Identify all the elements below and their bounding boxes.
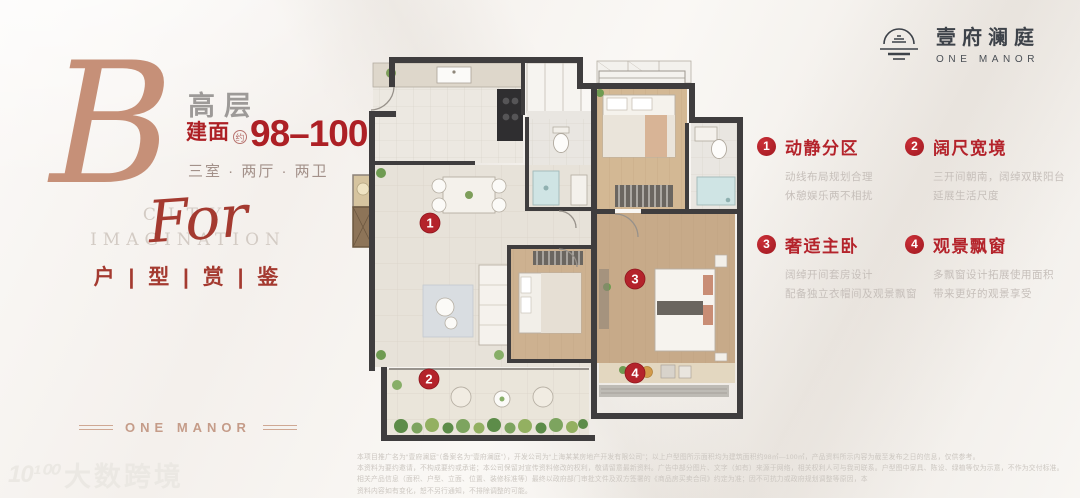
feature-1-line2: 休憩娱乐两不相扰 [785, 187, 897, 206]
area-approx-badge: 约 [233, 130, 247, 144]
feature-2-line1: 三开间朝南，阔绰双联阳台 [933, 168, 1073, 187]
watermark-logo: 10¹⁰⁰ [8, 460, 57, 489]
disclaimer-line2: 本资料为要约邀请，不构成要约或承诺；本公司保留对宣传资料修改的权利，敬请留意最新… [357, 463, 1064, 474]
sun-pavilion-icon [874, 20, 924, 66]
feature-2-badge: 2 [905, 137, 924, 156]
plan-marker-1-num: 1 [426, 216, 433, 231]
plan-marker-3-num: 3 [631, 272, 638, 287]
plan-letter: B [50, 40, 173, 208]
watermark-text: 大数跨境 [64, 455, 184, 494]
feature-1-line1: 动线布局规划合理 [785, 168, 897, 187]
feature-3-line2: 配备独立衣帽间及观景飘窗 [785, 285, 897, 304]
logo-name-en: ONE MANOR [936, 54, 1040, 65]
feature-2-title: 阔尺宽境 [933, 134, 1007, 159]
brand-footer: ONE MANOR [52, 420, 324, 435]
decorative-line-right [263, 425, 297, 430]
poster-canvas: B 高层 建面 约 98–100 m² 三室 · 两厅 · 两卫 CITY IM… [0, 0, 1080, 498]
feature-list: 1 动静分区 动线布局规划合理 休憩娱乐两不相扰 2 阔尺宽境 三开间朝南，阔绰… [757, 134, 1073, 304]
feature-1-badge: 1 [757, 137, 776, 156]
feature-3: 3 奢适主卧 阔绰开间套房设计 配备独立衣帽间及观景飘窗 [757, 232, 897, 304]
plan-marker-4: 4 [625, 363, 645, 383]
floor-plan-image: 1 2 3 4 [345, 55, 745, 445]
feature-4: 4 观景飘窗 多飘窗设计拓展使用面积 带来更好的观景享受 [905, 232, 1073, 304]
brand-footer-text: ONE MANOR [125, 420, 251, 435]
disclaimer-line4: 资料内容如有变化，恕不另行通知，不排除调整的可能。 [357, 486, 1064, 497]
disclaimer-line3: 相关产品信息（面积、户型、立面、位置、装修标准等）最终以政府部门审批文件及双方签… [357, 474, 1064, 485]
feature-3-title: 奢适主卧 [785, 232, 859, 257]
slogan-script-overlay: For [146, 187, 250, 252]
feature-4-badge: 4 [905, 235, 924, 254]
disclaimer-line1: 本项目推广名为“壹府澜庭”（备案名为“壹府澜庭”），开发公司为“上海某某房地产开… [357, 452, 1064, 463]
feature-4-title: 观景飘窗 [933, 232, 1007, 257]
brand-logo: 壹府澜庭 ONE MANOR [874, 20, 1040, 66]
feature-2-line2: 延展生活尺度 [933, 187, 1073, 206]
feature-3-line1: 阔绰开间套房设计 [785, 266, 897, 285]
feature-2: 2 阔尺宽境 三开间朝南，阔绰双联阳台 延展生活尺度 [905, 134, 1073, 206]
plan-marker-3: 3 [625, 269, 645, 289]
feature-1-title: 动静分区 [785, 134, 859, 159]
feature-1: 1 动静分区 动线布局规划合理 休憩娱乐两不相扰 [757, 134, 897, 206]
watermark: 10¹⁰⁰ 大数跨境 [8, 455, 184, 494]
review-title: 户 | 型 | 赏 | 鉴 [52, 261, 324, 291]
decorative-line-left [79, 425, 113, 430]
room-layout-text: 三室 · 两厅 · 两卫 [188, 160, 329, 181]
plan-marker-4-num: 4 [631, 366, 639, 381]
feature-3-badge: 3 [757, 235, 776, 254]
feature-4-line1: 多飘窗设计拓展使用面积 [933, 266, 1073, 285]
area-label: 建面 [186, 116, 230, 151]
legal-disclaimer: 本项目推广名为“壹府澜庭”（备案名为“壹府澜庭”），开发公司为“上海某某房地产开… [357, 452, 1064, 497]
plan-marker-1: 1 [420, 213, 440, 233]
plan-marker-2-num: 2 [425, 372, 432, 387]
plan-marker-2: 2 [419, 369, 439, 389]
logo-name-cn: 壹府澜庭 [936, 21, 1040, 50]
feature-4-line2: 带来更好的观景享受 [933, 285, 1073, 304]
